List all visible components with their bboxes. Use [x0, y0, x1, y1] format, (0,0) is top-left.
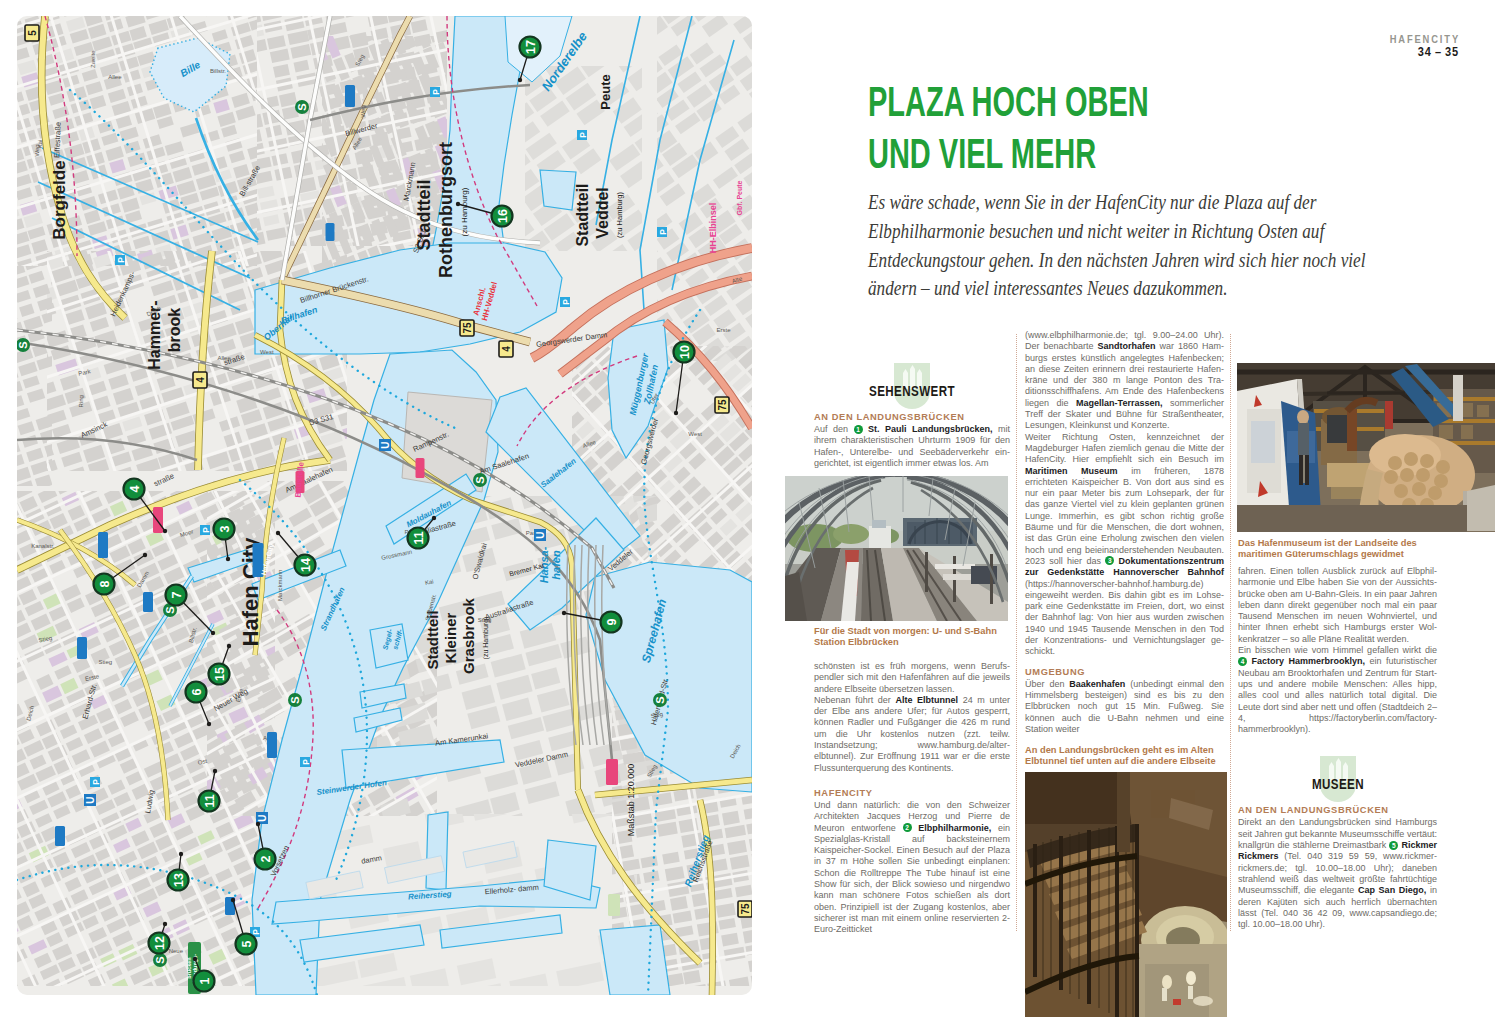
svg-text:4: 4 — [195, 377, 206, 383]
svg-text:4: 4 — [128, 485, 142, 492]
svg-text:Weg: Weg — [360, 105, 366, 117]
svg-text:Stieg: Stieg — [98, 659, 112, 665]
svg-text:U: U — [257, 814, 268, 821]
svg-text:16: 16 — [496, 209, 510, 223]
svg-text:Allee: Allee — [108, 74, 122, 80]
svg-text:Gbf. Peute: Gbf. Peute — [736, 180, 743, 215]
svg-text:17: 17 — [524, 40, 538, 54]
svg-text:West: West — [688, 431, 702, 437]
svg-text:Veddel: Veddel — [594, 187, 611, 239]
svg-text:S: S — [17, 341, 29, 348]
svg-text:3: 3 — [218, 525, 232, 532]
svg-text:P: P — [91, 779, 101, 785]
svg-text:11: 11 — [412, 531, 426, 544]
svg-text:U: U — [535, 531, 546, 538]
svg-text:S: S — [474, 476, 486, 483]
svg-text:S: S — [654, 696, 666, 703]
svg-text:Neue: Neue — [169, 948, 184, 954]
svg-text:Kanalstr.: Kanalstr. — [31, 543, 55, 549]
svg-text:5: 5 — [240, 940, 254, 947]
svg-text:7: 7 — [170, 591, 184, 598]
svg-text:P: P — [578, 132, 588, 138]
svg-text:S: S — [296, 103, 308, 110]
svg-text:Stadtteil: Stadtteil — [574, 183, 591, 246]
svg-text:9: 9 — [605, 618, 619, 625]
svg-text:P: P — [301, 759, 311, 765]
svg-text:(zu Hamburg): (zu Hamburg) — [615, 192, 624, 238]
svg-text:P: P — [116, 257, 126, 263]
svg-text:14: 14 — [299, 558, 313, 572]
svg-text:Erste: Erste — [717, 327, 732, 333]
svg-text:5: 5 — [27, 30, 38, 36]
svg-text:HH-Elbinsel: HH-Elbinsel — [708, 203, 718, 254]
svg-text:U: U — [380, 441, 391, 448]
svg-text:Maßstab 1:20.000: Maßstab 1:20.000 — [626, 764, 636, 837]
svg-text:10: 10 — [678, 345, 692, 359]
svg-text:Rothenburgsort: Rothenburgsort — [436, 142, 456, 278]
svg-text:Stieg: Stieg — [478, 617, 492, 623]
svg-text:Ring: Ring — [78, 395, 84, 407]
svg-text:11: 11 — [203, 794, 217, 807]
svg-text:Marckmann: Marckmann — [277, 570, 283, 601]
svg-text:75: 75 — [717, 399, 728, 411]
svg-text:Billstr.: Billstr. — [210, 68, 226, 74]
svg-text:Zweite: Zweite — [90, 50, 96, 68]
svg-text:13: 13 — [172, 873, 186, 887]
svg-text:hafen: hafen — [550, 550, 562, 580]
svg-text:15: 15 — [213, 667, 227, 681]
svg-text:S: S — [154, 956, 166, 963]
svg-text:Grasbrook: Grasbrook — [460, 597, 477, 674]
svg-text:2: 2 — [259, 855, 273, 862]
svg-text:6: 6 — [190, 688, 204, 695]
svg-text:brook: brook — [166, 308, 183, 353]
svg-text:U: U — [85, 796, 96, 803]
svg-text:Weg: Weg — [34, 144, 40, 156]
svg-text:West: West — [260, 349, 274, 355]
svg-text:S: S — [289, 696, 301, 703]
svg-text:P: P — [561, 299, 571, 305]
svg-text:Eiffestraße: Eiffestraße — [52, 122, 62, 158]
svg-text:4: 4 — [501, 346, 512, 352]
svg-text:P: P — [658, 229, 668, 235]
svg-text:1: 1 — [198, 977, 212, 984]
svg-text:75: 75 — [740, 903, 751, 915]
svg-text:P: P — [201, 527, 211, 533]
svg-text:P: P — [251, 929, 261, 935]
svg-text:Kleiner: Kleiner — [442, 612, 459, 663]
svg-text:(zu Hamburg): (zu Hamburg) — [460, 187, 469, 236]
svg-text:S: S — [164, 606, 176, 613]
svg-text:P: P — [431, 89, 441, 95]
svg-text:brücken: brücken — [186, 957, 192, 979]
svg-text:12: 12 — [153, 936, 167, 950]
svg-text:75: 75 — [462, 322, 473, 334]
svg-text:Borgfelde: Borgfelde — [50, 160, 69, 239]
svg-text:Allee: Allee — [217, 355, 231, 361]
svg-text:8: 8 — [98, 580, 112, 587]
svg-text:Peute: Peute — [598, 74, 613, 109]
